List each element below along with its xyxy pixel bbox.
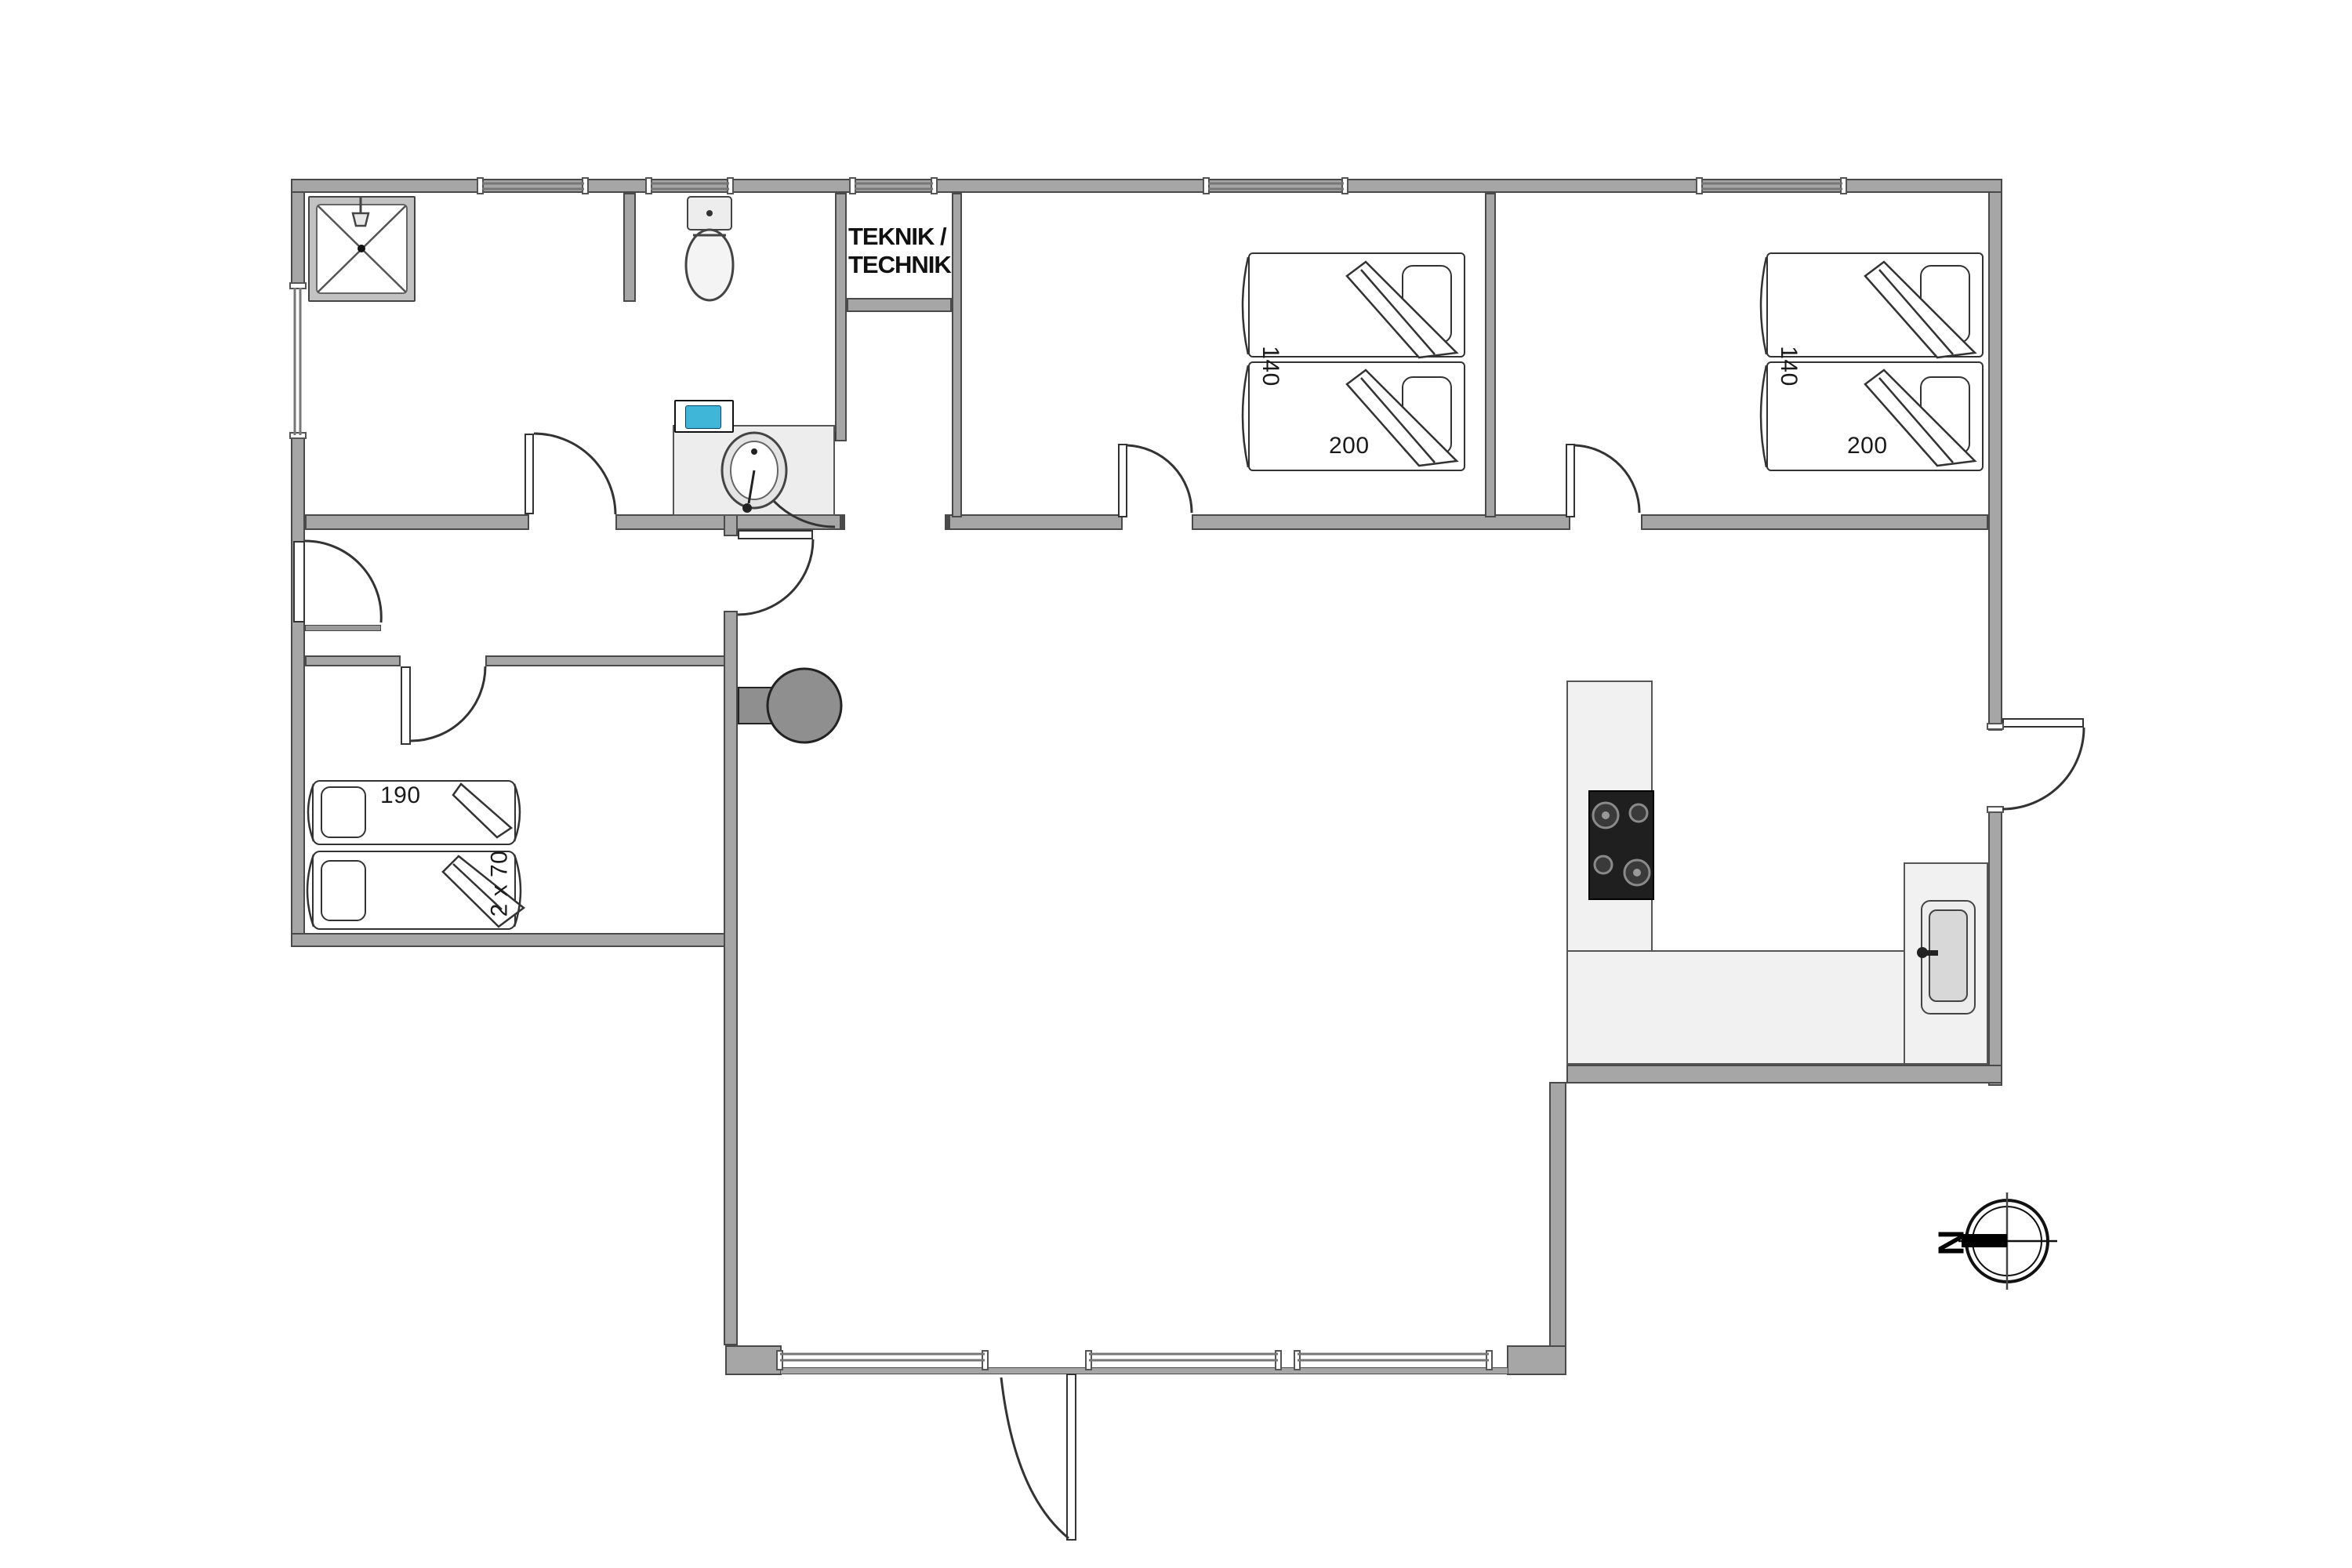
wall-bedroom-divider bbox=[1485, 193, 1496, 517]
pillow bbox=[1402, 265, 1452, 343]
wall-corridor-top-a bbox=[305, 514, 529, 530]
pillow bbox=[1920, 265, 1970, 343]
wall-hall-divider-b bbox=[485, 655, 725, 666]
window-jamb bbox=[849, 177, 856, 194]
wall-closet-stub bbox=[305, 625, 381, 631]
window-jamb bbox=[582, 177, 589, 194]
wall-outer-right-lower bbox=[1988, 811, 2002, 1086]
wall-living-west-lower bbox=[724, 611, 738, 1345]
opening-tick bbox=[945, 514, 949, 530]
window-jamb bbox=[727, 177, 734, 194]
window-jamb bbox=[289, 432, 307, 439]
door-leaf-bathroom bbox=[524, 434, 534, 514]
wood-stove-flue bbox=[738, 687, 779, 724]
wall-outer-top bbox=[291, 179, 2002, 193]
pillow bbox=[1402, 376, 1452, 455]
wall-outer-right-upper bbox=[1988, 191, 2002, 731]
wall-bathroom-right bbox=[835, 193, 847, 441]
window-jamb bbox=[1341, 177, 1348, 194]
bedroom1-bed-width-label: 140 bbox=[1257, 346, 1283, 387]
bedroom3-bed-widths-label: 2 x 70 bbox=[486, 851, 513, 917]
wall-corridor-top-d bbox=[1192, 514, 1570, 530]
wood-stove-icon bbox=[768, 669, 841, 742]
technical-room-label-line2: TECHNIK bbox=[848, 251, 958, 279]
compass-icon bbox=[1958, 1192, 2057, 1290]
window-jamb bbox=[1203, 177, 1210, 194]
floor-plan: TEKNIK / TECHNIK 140 200 140 200 190 2 x… bbox=[0, 0, 2352, 1568]
technical-room-label-line1: TEKNIK / bbox=[848, 223, 958, 251]
door-leaf-terrace bbox=[2002, 718, 2084, 728]
wall-corridor-top-e bbox=[1641, 514, 1988, 530]
door-leaf-closet bbox=[293, 541, 305, 622]
wall-teknik-bottom bbox=[847, 298, 952, 312]
wall-living-bottom-corner-right bbox=[1507, 1345, 1566, 1375]
bedroom2-bed-length-label: 200 bbox=[1847, 433, 1888, 459]
window-jamb bbox=[1840, 177, 1847, 194]
window-jamb bbox=[931, 177, 938, 194]
compass-north-label: N bbox=[1930, 1229, 1973, 1255]
window-jamb bbox=[1294, 1350, 1301, 1370]
wall-kitchen-bottom bbox=[1566, 1065, 2002, 1083]
shower-tray bbox=[316, 204, 408, 294]
door-leaf-bedroom3 bbox=[401, 666, 411, 745]
bedroom1-bed-length-label: 200 bbox=[1329, 433, 1370, 459]
window-jamb bbox=[1085, 1350, 1092, 1370]
duvet-fold-icon bbox=[443, 262, 1975, 927]
wall-hall-divider-a bbox=[305, 655, 401, 666]
wall-living-bottom-corner-left bbox=[725, 1345, 782, 1375]
wall-outer-left-upper bbox=[291, 191, 305, 289]
door-leaf-main-entrance bbox=[1066, 1374, 1076, 1541]
wall-corridor-top-c bbox=[949, 514, 1123, 530]
bedroom2-bed-width-label: 140 bbox=[1775, 346, 1802, 387]
pillow bbox=[321, 786, 366, 838]
window-jamb bbox=[289, 282, 307, 289]
toilet-tank-icon bbox=[687, 196, 732, 230]
bed-edge-arc bbox=[307, 257, 1766, 927]
window-jamb bbox=[982, 1350, 989, 1370]
window-jamb bbox=[477, 177, 484, 194]
window-jamb bbox=[645, 177, 652, 194]
wall-annex-bottom bbox=[291, 933, 725, 947]
appliance-screen bbox=[685, 405, 721, 429]
wall-outer-left-lower bbox=[291, 434, 305, 947]
window-jamb bbox=[1486, 1350, 1493, 1370]
window-jamb bbox=[1987, 806, 2004, 813]
window-jamb bbox=[776, 1350, 783, 1370]
door-leaf-bedroom2 bbox=[1566, 444, 1575, 517]
wall-living-west-upper bbox=[724, 514, 738, 536]
door-leaf-living bbox=[738, 530, 813, 539]
pillow bbox=[1920, 376, 1970, 455]
door-leaf-bedroom1 bbox=[1118, 444, 1127, 517]
cooktop-icon bbox=[1588, 790, 1654, 900]
wall-living-right bbox=[1549, 1082, 1566, 1374]
bedroom3-bed-length-label: 190 bbox=[380, 782, 421, 809]
wall-living-bottom-sill bbox=[780, 1367, 1508, 1374]
technical-room-label: TEKNIK / TECHNIK bbox=[848, 223, 958, 279]
window-jamb bbox=[1987, 723, 2004, 730]
washbasin-counter bbox=[673, 425, 835, 516]
wall-bathroom-partition bbox=[623, 193, 636, 302]
sink-basin bbox=[1929, 909, 1968, 1002]
window-jamb bbox=[1696, 177, 1703, 194]
opening-tick bbox=[841, 514, 845, 530]
pillow bbox=[321, 860, 366, 921]
window-jamb bbox=[1275, 1350, 1282, 1370]
